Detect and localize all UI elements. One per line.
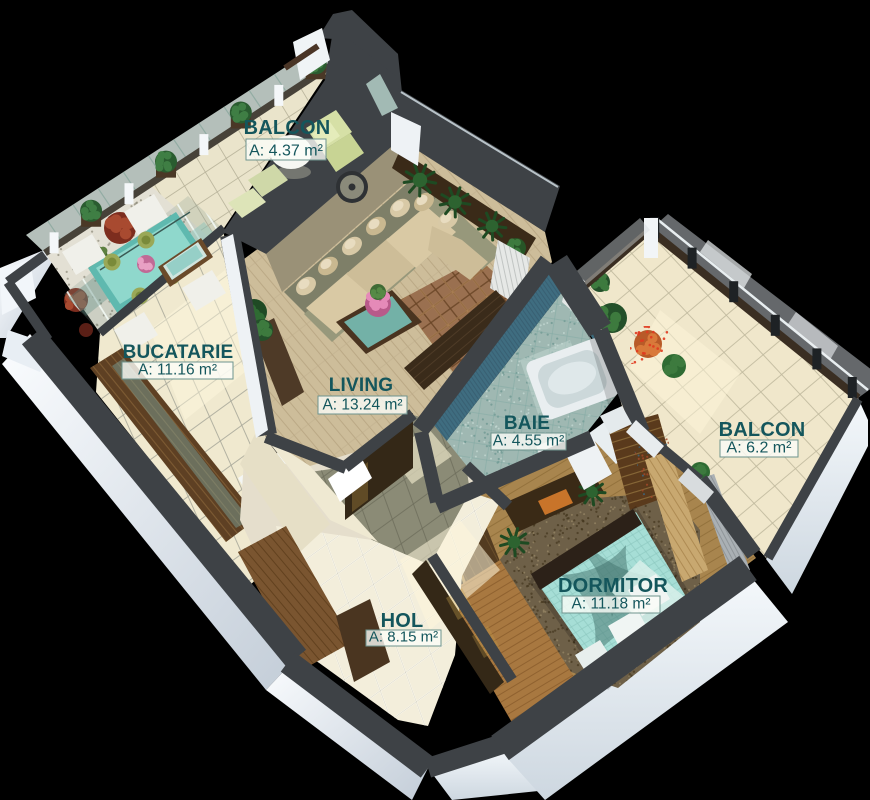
svg-text:A: 11.16 m²: A: 11.16 m² — [138, 362, 217, 379]
svg-text:BUCATARIE: BUCATARIE — [123, 342, 234, 363]
svg-text:BALCON: BALCON — [719, 419, 806, 441]
svg-text:A: 13.24 m²: A: 13.24 m² — [322, 397, 402, 414]
svg-text:LIVING: LIVING — [329, 375, 394, 396]
svg-text:BALCON: BALCON — [244, 117, 331, 139]
svg-text:A: 4.37 m²: A: 4.37 m² — [249, 143, 323, 160]
svg-text:A: 4.55 m²: A: 4.55 m² — [493, 433, 565, 450]
svg-text:A: 6.2 m²: A: 6.2 m² — [727, 440, 793, 457]
svg-text:BAIE: BAIE — [504, 413, 550, 434]
